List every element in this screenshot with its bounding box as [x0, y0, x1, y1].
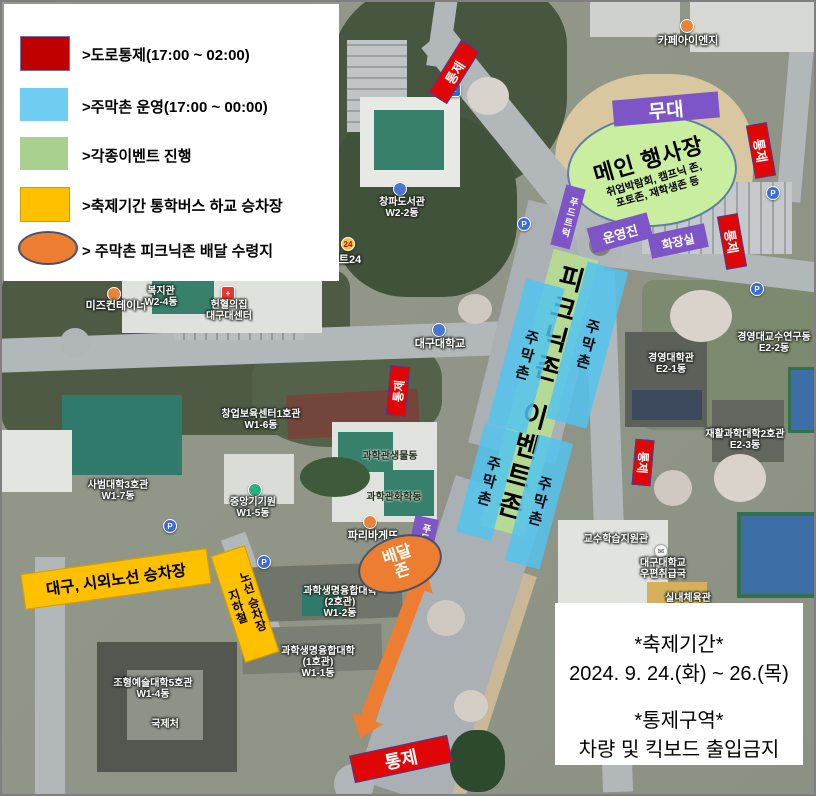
poi-label: 경영대교수연구동E2-2동	[737, 332, 811, 354]
control-area-title: *통제구역*	[555, 707, 803, 736]
tree-blob	[458, 294, 492, 324]
building	[590, 2, 680, 37]
legend-swatch-bus	[20, 187, 70, 222]
tree-blob	[300, 457, 370, 497]
tennis-court	[788, 367, 816, 433]
tree-blob	[467, 77, 509, 115]
festival-map-canvas: 24 + ✉ P P P P P ← 카페아이엔지 창파도서관W2-2동 이마트…	[0, 0, 816, 796]
restroom-text: 화장실	[660, 229, 696, 253]
poi-label: 대구대학교	[415, 338, 466, 350]
control-area-rule: 차량 및 킥보드 출입금지	[555, 736, 803, 765]
building-roof	[632, 390, 702, 420]
festival-period-dates: 2024. 9. 24.(화) ~ 26.(목)	[555, 660, 803, 689]
poi-label: 카페아이엔지	[658, 35, 719, 47]
poi-label: 사범대학3호관W1-7동	[88, 480, 149, 502]
staff-text: 운영진	[600, 219, 640, 247]
parking-icon: P	[766, 186, 780, 200]
emart24-icon: 24	[341, 237, 355, 251]
poi-label: 창업보육센터1호관W1-6동	[221, 409, 300, 431]
legend-panel: >도로통제(17:00 ~ 02:00) >주막촌 운영(17:00 ~ 00:…	[4, 4, 339, 281]
poi-label: 헌혈의집대구대센터	[206, 300, 252, 322]
blood-donation-icon: +	[221, 286, 235, 300]
poi-label: 미즈컨테이너	[86, 300, 147, 312]
legend-label: > 주막촌 피크닉존 배달 수령지	[82, 240, 273, 261]
poi-label: 중앙기기원W1-5동	[230, 497, 276, 519]
poi-label: 복지관W2-4동	[144, 286, 177, 308]
tree-blob	[454, 690, 488, 722]
poi-label: 국제처	[151, 719, 179, 730]
tennis-court	[737, 512, 816, 598]
main-venue-text: 메인 행사장 취업박람회, 캠프닉 존, 포토존, 재학생존 등	[589, 127, 714, 214]
legend-swatch-jumak	[20, 88, 68, 121]
bakery-icon	[363, 515, 377, 529]
tree-blob	[670, 290, 732, 342]
road-control-badge: 통제	[632, 439, 655, 486]
legend-label: >도로통제(17:00 ~ 02:00)	[82, 44, 250, 65]
poi-label: 과학관화학동	[366, 492, 421, 503]
parking-icon: P	[750, 282, 764, 296]
library-icon	[393, 182, 407, 196]
poi-label: 교수학습지원관	[584, 534, 648, 545]
cafe-icon	[680, 19, 694, 33]
parking-icon: P	[517, 217, 531, 231]
post-office-icon: ✉	[654, 544, 668, 558]
poi-label: 과학관생물동	[362, 451, 417, 462]
legend-label: >축제기간 통학버스 하교 승차장	[82, 195, 283, 216]
pine-cluster	[450, 730, 505, 792]
tree-blob	[714, 454, 766, 502]
tree-blob	[654, 470, 692, 506]
poi-label: 창파도서관W2-2동	[379, 197, 425, 219]
festival-period-title: *축제기간*	[555, 631, 803, 660]
parking-icon: P	[257, 555, 271, 569]
university-icon	[432, 323, 446, 337]
poi-label: 재활과학대학2호관E2-3동	[705, 429, 784, 451]
legend-swatch-delivery	[18, 231, 78, 265]
lab-center-icon	[248, 483, 262, 497]
poi-label: 조형예술대학5호관W1-4동	[113, 678, 192, 700]
building	[2, 430, 72, 492]
building	[62, 395, 182, 475]
jumak-label: 주막촌	[509, 327, 543, 385]
stage-label: 무대	[647, 94, 684, 124]
delivery-zone-text: 존	[393, 562, 412, 583]
poi-label: 대구대학교우편취급국	[640, 558, 686, 580]
legend-label: >각종이벤트 진행	[82, 145, 192, 166]
parking-icon: P	[163, 519, 177, 533]
legend-label: >주막촌 운영(17:00 ~ 00:00)	[82, 96, 268, 117]
restaurant-icon	[107, 287, 121, 301]
jumak-label: 주막촌	[570, 316, 604, 374]
jumak-label: 주막촌	[522, 473, 556, 531]
roundabout	[60, 328, 90, 358]
poi-label: 경영대학관E2-1동	[648, 353, 694, 375]
building-roof	[374, 110, 444, 170]
legend-swatch-event	[20, 137, 68, 170]
jumak-label: 주막촌	[471, 453, 505, 511]
legend-swatch-road-control	[20, 36, 70, 71]
festival-info-box: *축제기간* 2024. 9. 24.(화) ~ 26.(목) *통제구역* 차…	[555, 603, 803, 765]
